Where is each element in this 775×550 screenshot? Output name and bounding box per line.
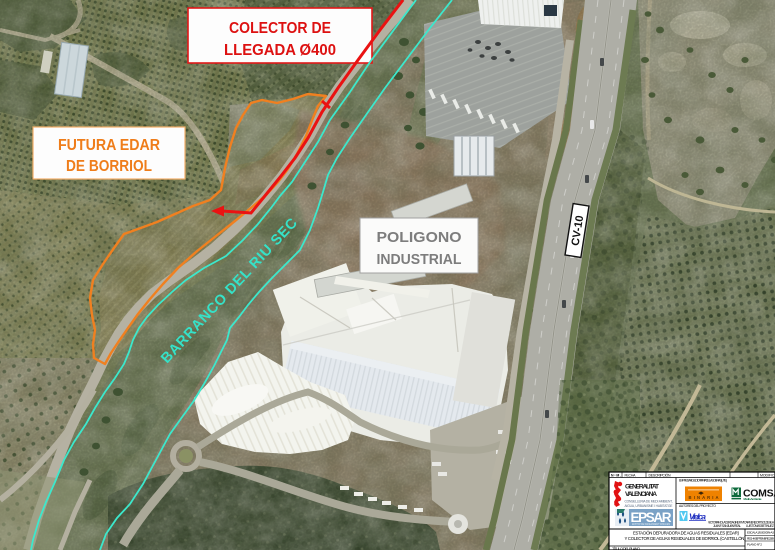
svg-text:Medio Ambiente: Medio Ambiente xyxy=(744,497,762,501)
svg-text:ENTITAT DE SANEJAMENT D'AIGUES: ENTITAT DE SANEJAMENT D'AIGUES xyxy=(632,523,670,526)
svg-text:VALENCIANA: VALENCIANA xyxy=(625,491,657,498)
svg-text:CONSELLERIA DE MEDI AMBIENT,: CONSELLERIA DE MEDI AMBIENT, xyxy=(625,500,673,504)
svg-text:POLIGONO: POLIGONO xyxy=(377,229,462,246)
svg-text:AIGUA, URBANISME I HABITATGE: AIGUA, URBANISME I HABITATGE xyxy=(625,504,674,508)
svg-text:LUIS TOMAS BETI NUEZ: LUIS TOMAS BETI NUEZ xyxy=(746,524,774,528)
svg-text:AUTORES DEL PROYECTO: AUTORES DEL PROYECTO xyxy=(679,504,716,508)
svg-text:COLECTOR DE: COLECTOR DE xyxy=(229,20,331,37)
svg-text:ESCALA 1/5.000 DIN-A3: ESCALA 1/5.000 DIN-A3 xyxy=(747,531,774,535)
svg-text:JUAN F. SANJUAN REAL: JUAN F. SANJUAN REAL xyxy=(713,524,741,528)
svg-text:Y COLECTOR DE AGUAS RESIDUALES: Y COLECTOR DE AGUAS RESIDUALES DE BORRIO… xyxy=(625,536,747,541)
svg-text:FECHA SEPTIEMBRE 2009: FECHA SEPTIEMBRE 2009 xyxy=(747,536,774,540)
svg-text:DESCRIPCIÓN: DESCRIPCIÓN xyxy=(649,472,671,477)
svg-text:ESTACIÓN DEPURADORA DE AGUAS R: ESTACIÓN DEPURADORA DE AGUAS RESIDUALES … xyxy=(633,531,740,536)
svg-text:LLEGADA Ø400: LLEGADA Ø400 xyxy=(224,42,336,59)
svg-text:FECHA: FECHA xyxy=(625,473,637,477)
svg-text:GENERALITAT: GENERALITAT xyxy=(625,484,659,491)
svg-text:FUTURA EDAR: FUTURA EDAR xyxy=(58,137,160,154)
svg-text:DE BORRIOL: DE BORRIOL xyxy=(66,158,152,175)
svg-text:B I N A R I A: B I N A R I A xyxy=(689,495,719,500)
svg-text:INDUSTRIAL: INDUSTRIAL xyxy=(377,251,462,268)
svg-text:PLANO Nº 2: PLANO Nº 2 xyxy=(747,542,762,546)
svg-text:Vielca: Vielca xyxy=(689,512,706,522)
svg-text:MODIFICAC.: MODIFICAC. xyxy=(760,473,775,477)
svg-text:EMPRESA ADJUDICATARIA DE LAS O: EMPRESA ADJUDICATARIA DE LAS OBRAS (UTE) xyxy=(679,479,727,483)
